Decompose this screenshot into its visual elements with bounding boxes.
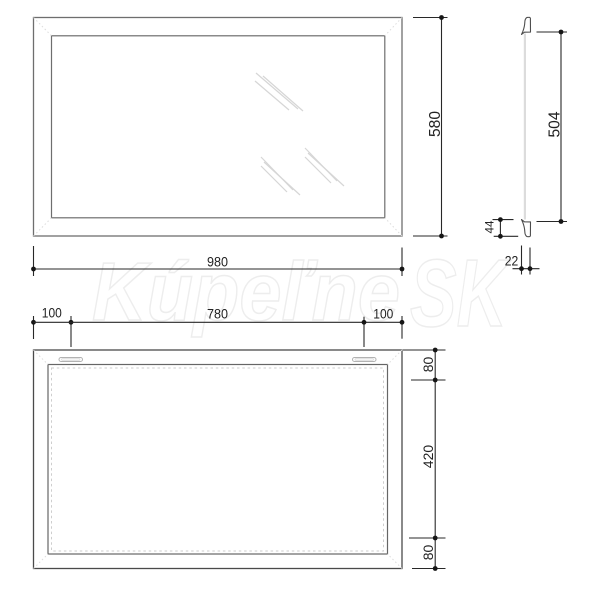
svg-text:580: 580 — [427, 111, 444, 137]
svg-text:100: 100 — [42, 305, 62, 321]
svg-text:SK: SK — [410, 240, 512, 347]
svg-text:44: 44 — [485, 220, 497, 234]
svg-text:80: 80 — [420, 357, 436, 373]
svg-text:Kúpeľne: Kúpeľne — [92, 245, 400, 338]
svg-text:100: 100 — [373, 306, 393, 322]
svg-text:22: 22 — [505, 253, 519, 269]
svg-text:980: 980 — [207, 253, 228, 269]
svg-text:80: 80 — [420, 545, 436, 561]
svg-text:420: 420 — [420, 445, 436, 469]
svg-text:504: 504 — [547, 111, 564, 137]
svg-text:780: 780 — [207, 306, 228, 322]
